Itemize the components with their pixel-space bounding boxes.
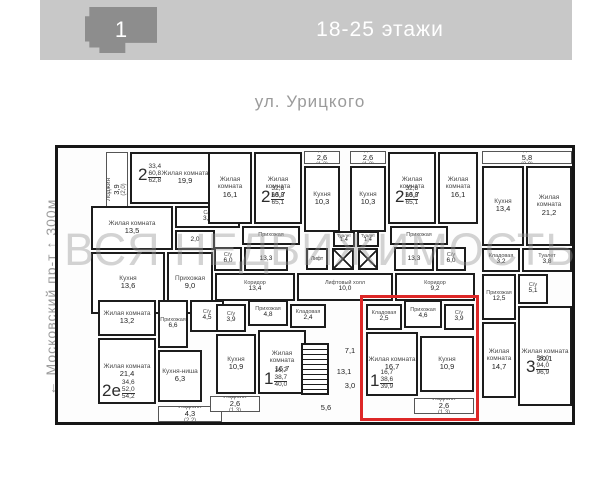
header-bar: 1 18-25 этажи — [40, 0, 572, 60]
room-hall-b: Прихожая — [390, 226, 448, 245]
elevator-cabinet: Лифт — [306, 248, 328, 270]
room-living-16-1-a: Жилая комната16,1 — [208, 152, 252, 224]
apartment-badge-apt-1-left: 116,738,740,0 — [264, 368, 287, 389]
room-kitchen-niche-6-3: Кухня-ниша6,3 — [158, 350, 202, 402]
room-living-13-2: Жилая комната13,2 — [98, 300, 156, 336]
room-loggia-2-6-b: Лоджия2,6(1,3) — [350, 151, 386, 164]
apartment-badge-apt-2-right: 232,863,865,1 — [395, 186, 418, 207]
page: 1 18-25 этажи ул. Урицкого ← Московский … — [0, 0, 611, 500]
room-living-16-1-b: Жилая комната16,1 — [438, 152, 478, 224]
room-wc-2-0: 2,0 — [175, 230, 215, 250]
room-loggia-5-8: Лоджия5,8(2,9) — [482, 151, 572, 164]
stairs — [301, 343, 329, 395]
room-room-13-3-a: 13,3 — [244, 247, 288, 271]
apartment-badge-apt-3: 356,094,096,9 — [526, 356, 549, 377]
room-corridor-13-4: Коридор13,4 — [215, 273, 295, 301]
building-number: 1 — [115, 17, 127, 43]
room-lobby-5-6: 5,6 — [306, 400, 346, 416]
room-loggia-2-6-c: Лоджия2,6(1,3) — [210, 396, 260, 412]
room-wc-6-0-b: С/у6,0 — [436, 247, 466, 271]
apartment-badge-apt-2: 233,460,862,8 — [138, 164, 161, 185]
building-footprint-icon: 1 — [85, 7, 157, 53]
room-lobby-3-0: 3,0 — [342, 378, 358, 394]
room-toilet-3-8: Туалет3,8 — [522, 248, 572, 272]
room-lobby-7-1: 7,1 — [342, 343, 358, 359]
room-hall-6-6: Прихожая6,6 — [158, 300, 188, 348]
room-hall-4-8: Прихожая4,8 — [248, 300, 288, 326]
room-kitchen-10-3-b: Кухня10,3 — [350, 166, 386, 232]
room-living-13-5: Жилая комната13,5 — [91, 206, 173, 250]
room-storage-3-2: Кладовая3,2 — [482, 248, 520, 272]
selected-apartment-highlight[interactable] — [360, 295, 479, 421]
room-hall-a: Прихожая — [242, 226, 300, 245]
room-kitchen-13-4: Кухня13,4 — [482, 166, 524, 246]
elevator-shaft-2 — [358, 248, 378, 270]
room-wc-6-0-a: С/у6,0 — [214, 247, 242, 271]
apartment-badge-apt-2e: 2е34,652,054,2 — [102, 380, 135, 401]
room-living-14-7: Жилая комната14,7 — [482, 322, 516, 398]
floors-title: 18-25 этажи — [290, 18, 470, 42]
room-toilet-1-4-a: Туалет1,4 — [333, 231, 355, 247]
street-label: ул. Урицкого — [200, 92, 420, 112]
apartment-badge-apt-2-left: 232,863,865,1 — [261, 186, 284, 207]
elevator-shaft-1 — [332, 248, 354, 270]
floor-plan: Лоджия3,9(2,0)Жилая комната19,9Жилая ком… — [55, 145, 575, 425]
room-storage-2-4: Кладовая2,4 — [290, 304, 326, 328]
room-room-13-3-b: 13,3 — [394, 247, 434, 271]
room-wc-3-9-a: С/у3,9 — [216, 304, 246, 332]
room-hall-12-5: Прихожая12,5 — [482, 274, 516, 320]
room-kitchen-10-9-a: Кухня10,9 — [216, 334, 256, 394]
room-loggia-2-6-a: Лоджия2,6(1,3) — [304, 151, 340, 164]
room-wc-5-1: С/у5,1 — [518, 274, 548, 304]
room-living-21-2: Жилая комната21,2 — [526, 166, 572, 246]
room-toilet-1-4-b: Туалет1,4 — [357, 231, 379, 247]
room-kitchen-10-3-a: Кухня10,3 — [304, 166, 340, 232]
